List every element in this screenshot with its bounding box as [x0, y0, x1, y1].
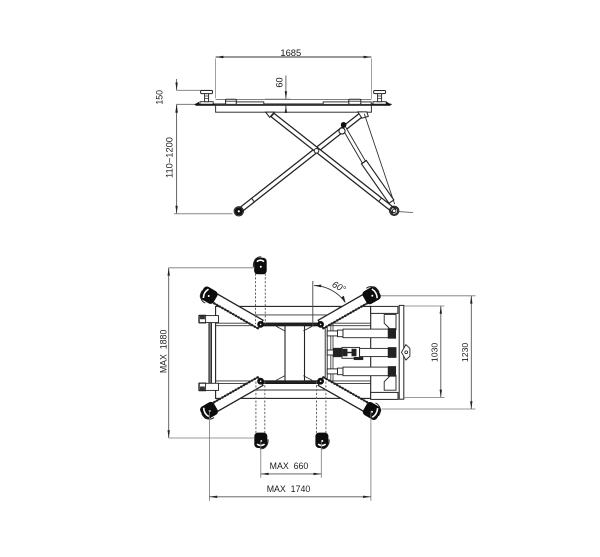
svg-text:60: 60: [275, 77, 285, 87]
svg-text:MAX 1880: MAX 1880: [158, 330, 168, 374]
svg-text:1685: 1685: [280, 47, 301, 58]
svg-text:1230: 1230: [460, 343, 470, 362]
svg-text:1030: 1030: [429, 343, 439, 362]
svg-text:MAX 660: MAX 660: [270, 461, 309, 471]
svg-text:110~1200: 110~1200: [165, 137, 175, 178]
svg-text:MAX 1740: MAX 1740: [267, 484, 311, 494]
svg-text:150: 150: [154, 90, 164, 105]
